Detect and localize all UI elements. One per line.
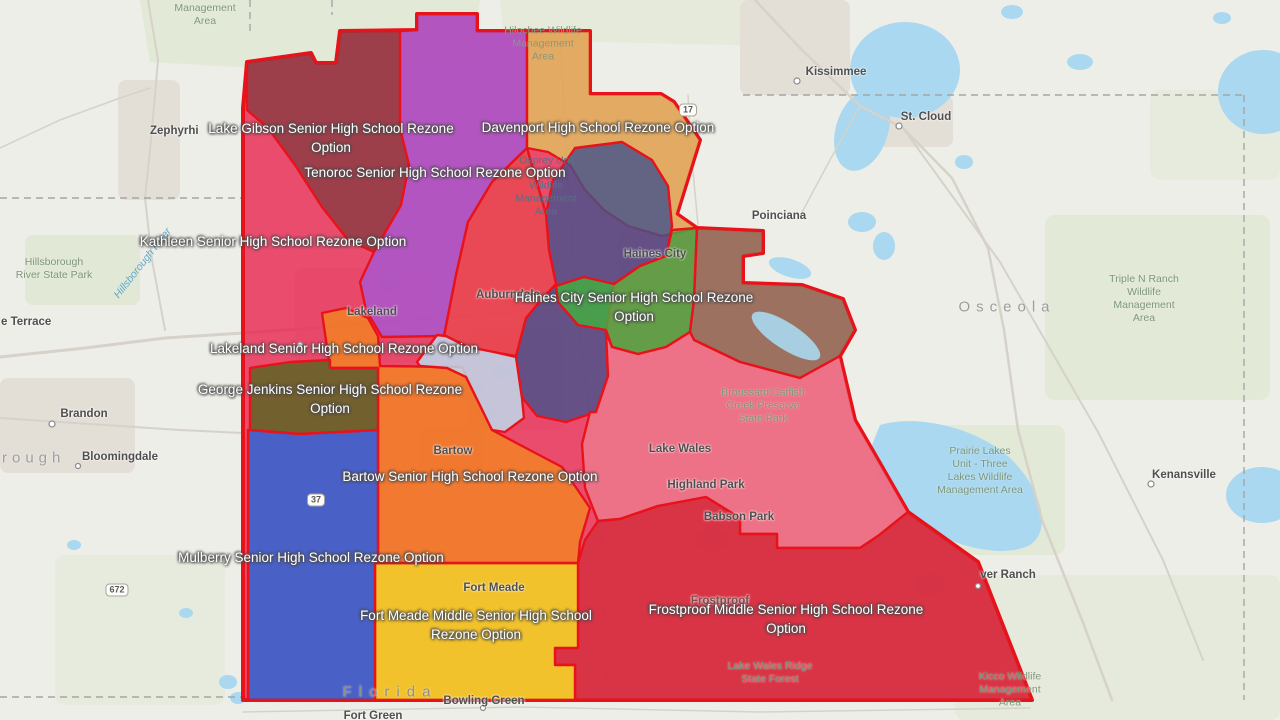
map-canvas[interactable]: Hillsborough River (0, 0, 1280, 720)
city-marker (976, 584, 981, 589)
city-label: Bartow (434, 445, 473, 457)
route-shield-672: 672 (105, 584, 128, 597)
zone-label-kathleen: Kathleen Senior High School Rezone Optio… (140, 232, 406, 251)
wildlife-area-label: Hilochee WildlifeManagementArea (504, 25, 582, 64)
park-label: HillsboroughRiver State Park (16, 256, 92, 282)
area-label: Florida (343, 684, 438, 701)
route-shield-37: 37 (307, 494, 325, 507)
area-label: rough (2, 450, 65, 467)
zone-label-davenport: Davenport High School Rezone Option (482, 118, 715, 137)
city-label: e Terrace (1, 316, 51, 328)
wildlife-area-label: WildlifeManagementArea (515, 180, 576, 219)
city-label: Lake Wales (649, 443, 711, 455)
city-label: ver Ranch (980, 569, 1036, 581)
park-label: Triple N RanchWildlifeManagementArea (1109, 273, 1179, 325)
basemap-svg: Hillsborough River (0, 0, 1280, 720)
zone-label-bartow: Bartow Senior High School Rezone Option (342, 467, 597, 486)
city-marker (49, 421, 55, 427)
city-label: Kenansville (1152, 469, 1216, 481)
zone-label-haines-city: Haines City Senior High School RezoneOpt… (515, 288, 754, 326)
park-label: Lake Wales RidgeState Forest (728, 660, 813, 686)
city-label: Lakeland (347, 306, 397, 318)
park-label: Prairie LakesUnit - ThreeLakes WildlifeM… (937, 445, 1023, 497)
city-marker (896, 123, 902, 129)
zone-label-frostproof: Frostproof Middle Senior High School Rez… (649, 600, 924, 638)
city-label: Poinciana (752, 210, 806, 222)
route-shield-17: 17 (679, 104, 697, 117)
city-marker (76, 464, 81, 469)
city-label: Fort Meade (463, 582, 524, 594)
park-label: Kicco WildlifeManagementArea (979, 671, 1041, 710)
city-label: Haines City (624, 248, 687, 260)
zone-label-mulberry: Mulberry Senior High School Rezone Optio… (178, 548, 444, 567)
city-label: Brandon (60, 408, 107, 420)
zone-label-george-jenkins: George Jenkins Senior High School Rezone… (198, 380, 462, 418)
city-label: Highland Park (667, 479, 744, 491)
city-marker (1148, 481, 1154, 487)
park-label: Broussard CatfishCreek PreserveState Par… (721, 387, 804, 426)
city-label: Bowling Green (443, 695, 524, 707)
city-label: Babson Park (704, 511, 774, 523)
park-label: ManagementArea (174, 2, 235, 28)
city-label: Zephyrhi (150, 125, 199, 137)
zone-label-lake-gibson: Lake Gibson Senior High School RezoneOpt… (208, 119, 453, 157)
city-label: Bloomingdale (82, 451, 158, 463)
area-label: Osceola (958, 299, 1055, 316)
city-label: Kissimmee (806, 66, 867, 78)
city-label: St. Cloud (901, 111, 951, 123)
city-label: Fort Green (344, 710, 403, 720)
zone-label-lakeland: Lakeland Senior High School Rezone Optio… (210, 339, 478, 358)
zone-label-fort-meade: Fort Meade Middle Senior High SchoolRezo… (360, 606, 592, 644)
city-marker (794, 78, 800, 84)
zone-label-tenoroc: Tenoroc Senior High School Rezone Option (304, 163, 565, 182)
